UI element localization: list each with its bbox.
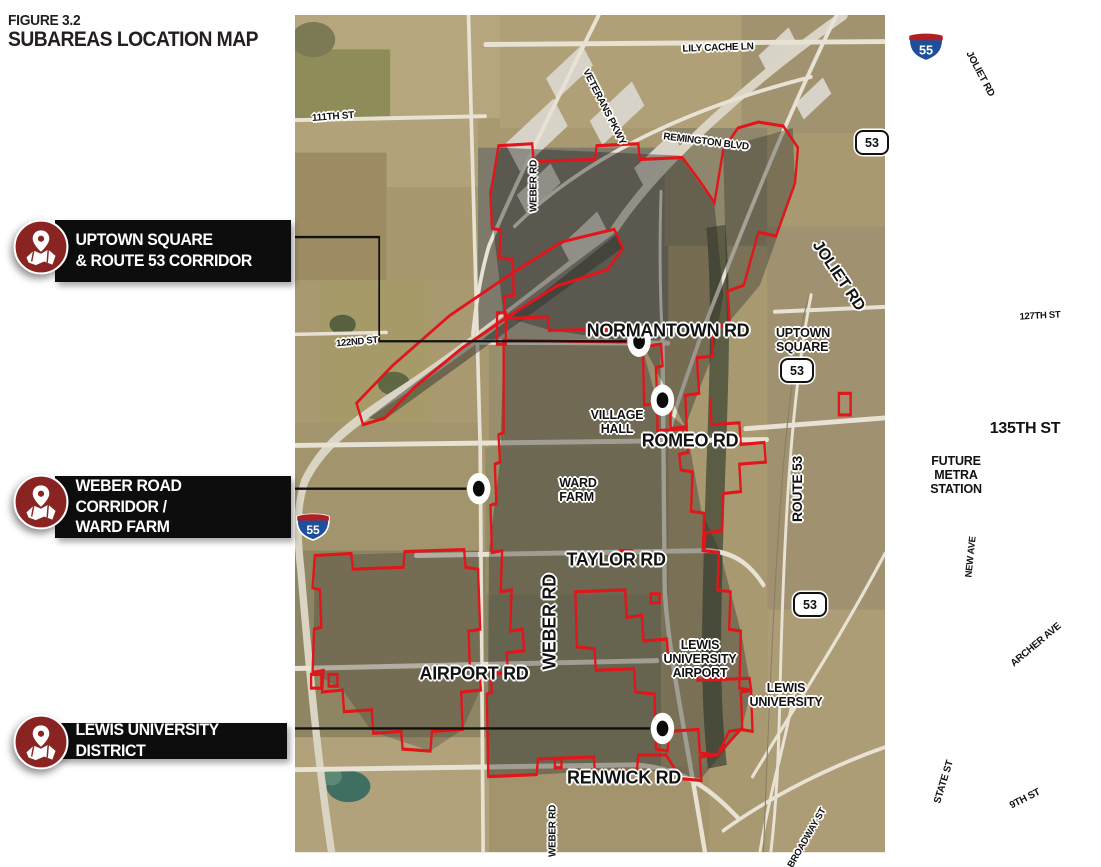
map-pin-icon [13, 714, 69, 770]
figure-number: FIGURE 3.2 [8, 12, 80, 29]
callout-label: UPTOWN SQUARE & ROUTE 53 CORRIDOR [55, 222, 265, 279]
road-label-route-53: ROUTE 53 [789, 456, 805, 522]
map-pin-icon [13, 474, 69, 530]
map-pin-icon [13, 219, 69, 275]
figure-title: SUBAREAS LOCATION MAP [8, 28, 258, 52]
route-53-shield-south: 53 [793, 592, 827, 617]
poi-label-village-hall: VILLAGE HALL [591, 408, 644, 436]
route-53-shield-mid: 53 [780, 358, 814, 383]
marker-ward-farm [467, 473, 490, 504]
interstate-55-number: 55 [306, 523, 320, 537]
road-label-airport-rd: AIRPORT RD [420, 664, 529, 685]
callout-weber-road-ward-farm: WEBER ROAD CORRIDOR / WARD FARM [55, 476, 291, 538]
road-label-renwick-rd: RENWICK RD [567, 768, 681, 789]
poi-label-future-metra-station: FUTURE METRA STATION [930, 454, 982, 496]
poi-label-uptown-square: UPTOWN SQUARE [776, 326, 830, 354]
callout-label: LEWIS UNIVERSITY DISTRICT [55, 712, 271, 769]
callout-uptown-square-route53: UPTOWN SQUARE & ROUTE 53 CORRIDOR [55, 220, 291, 282]
figure-page: { "figure": { "label": "FIGURE 3.2", "ti… [0, 0, 1101, 867]
road-label-romeo-rd: ROMEO RD [642, 431, 739, 452]
road-label-taylor-rd: TAYLOR RD [566, 550, 665, 571]
interstate-55-shield-north: 55 [907, 30, 945, 67]
interstate-55-shield-west: 55 [295, 511, 331, 546]
road-label-135th-st: 135TH ST [990, 420, 1061, 438]
road-label-normantown-rd: NORMANTOWN RD [587, 321, 750, 342]
marker-route53 [651, 384, 674, 415]
poi-label-lewis-university-airport: LEWIS UNIVERSITY AIRPORT [663, 638, 736, 680]
poi-label-ward-farm: WARD FARM [559, 476, 596, 504]
road-label-weber-rd: WEBER RD [540, 574, 561, 670]
interstate-55-number: 55 [919, 43, 933, 57]
marker-lewis-university [651, 713, 674, 744]
poi-label-lewis-university: LEWIS UNIVERSITY [749, 681, 822, 709]
road-label-weber-rd-south: WEBER RD [548, 805, 559, 857]
callout-label: WEBER ROAD CORRIDOR / WARD FARM [55, 468, 274, 546]
route-53-shield-north: 53 [855, 130, 889, 155]
road-label-weber-rd-north: WEBER RD [529, 160, 540, 212]
road-label-127th-st: 127TH ST [1019, 309, 1060, 322]
callout-lewis-university-district: LEWIS UNIVERSITY DISTRICT [55, 723, 287, 759]
